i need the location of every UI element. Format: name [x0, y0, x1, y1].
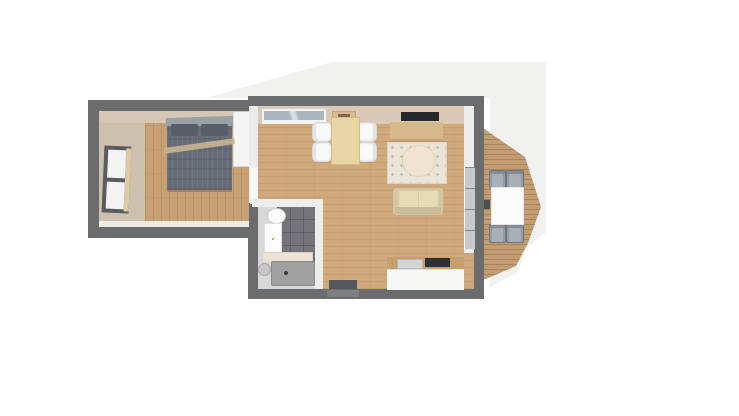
bathroom-wall-top [252, 199, 323, 207]
bathroom-wall-right [315, 199, 323, 289]
window-pane [107, 150, 126, 179]
sofa-backrest [395, 207, 441, 214]
door-handle [484, 200, 490, 209]
dining-table [331, 117, 360, 165]
bed-pillow [171, 124, 198, 136]
doormat [329, 280, 357, 289]
balcony-chair [506, 224, 524, 243]
dining-chair [357, 122, 377, 142]
vanity-knob [272, 238, 274, 240]
double-bed [166, 117, 233, 193]
dining-chair [312, 122, 332, 142]
bedroom-baseboard [99, 221, 249, 227]
floor-plan-canvas [0, 0, 739, 416]
balcony-chair [506, 170, 524, 188]
balcony-chair [489, 170, 506, 188]
kitchen-sink [397, 259, 423, 269]
washbasin [267, 208, 286, 224]
balcony-chair [489, 224, 506, 243]
sideboard [390, 122, 443, 141]
dining-chair [312, 142, 332, 162]
toilet [258, 263, 271, 276]
entrance-door [327, 290, 359, 297]
kitchen-counter-front [387, 269, 464, 290]
balcony-table [491, 187, 524, 225]
sliding-glass-door [464, 167, 475, 249]
tv [401, 112, 439, 121]
shower-tray [271, 261, 315, 286]
window-glass [264, 111, 324, 120]
wardrobe [233, 112, 250, 167]
cooktop [425, 258, 450, 267]
sofa [393, 188, 443, 215]
shower-drain [284, 271, 288, 275]
bedroom-window [102, 145, 132, 213]
bed-pillow [201, 124, 228, 136]
dining-chair [357, 142, 377, 162]
round-coffee-table [402, 145, 436, 177]
window-pane [106, 182, 125, 210]
